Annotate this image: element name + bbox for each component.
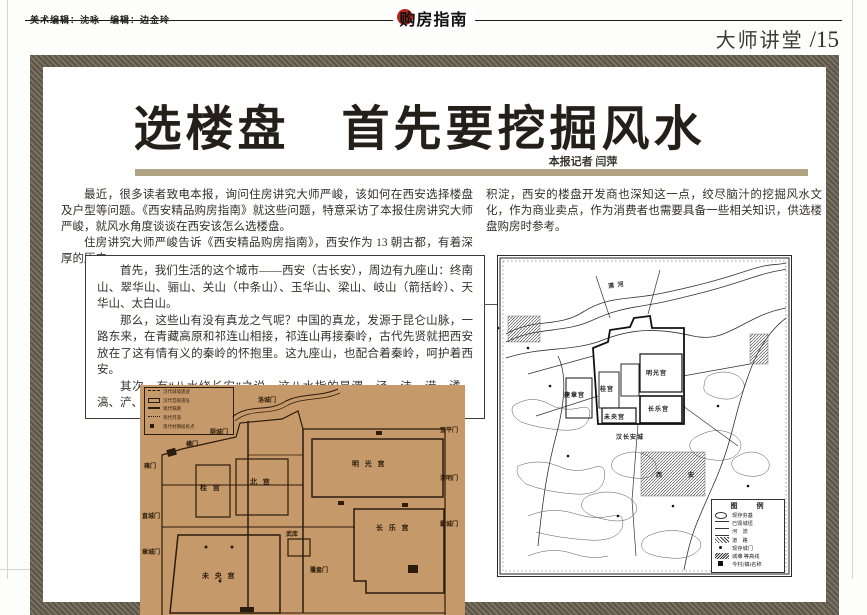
intro-paragraph-3: 积淀，西安的楼盘开发商也深知这一点，绞尽脑汁的挖掘风水文化，作为商业卖点，作为消… [486,187,822,235]
palace-label-gui: 桂 宫 [200,483,222,493]
legend-symbol-road-icon [715,537,729,543]
legend-row: 现代河道 [145,414,233,423]
gate-label-xuanpingmen: 宣平门 [440,425,458,434]
legend-title: 图 例 [716,501,784,511]
legend-symbol-wall-ruin-icon [148,390,160,396]
legend-row: 汉代宫殿遗址 [145,397,233,406]
gate-label-zhangchengmen: 章城门 [142,547,160,556]
gate-label-hengmen: 横门 [186,439,198,448]
masthead: 购房指南 [392,6,474,30]
map-label-gui-palace: 桂宫 [600,384,614,393]
map-label-mingguang-palace: 明光宫 [646,368,667,377]
legend-row: 已毁城垣 [712,519,784,527]
byline: 本报记者 闫萍 [503,153,663,169]
box-paragraph-2: 那么，这些山有没有真龙之气呢？中国的真龙，发源于昆仑山脉，一路东来，在青藏高原和… [97,313,473,379]
intro-column-right: 积淀，西安的楼盘开发商也深知这一点，绞尽脑汁的挖掘风水文化，作为商业卖点，作为消… [486,187,822,235]
legend-row: 汉代城墙遗迹 [145,388,233,397]
palace-label-weiyang: 未 央 宫 [202,571,237,581]
section-heading: 大师讲堂/15 [716,24,839,53]
palace-label-mingguang: 明 光 宫 [352,459,387,469]
map-label-xian: 西 安 [656,470,704,479]
legend-symbol-village-icon [718,561,723,566]
legend-symbol-contour-icon [715,553,729,559]
page-edge-right [852,0,853,579]
masthead-text: 购房指南 [399,12,467,29]
page-number: /15 [810,27,839,52]
legend-symbol-gate-icon [719,546,722,549]
legend-symbol-river-icon [148,416,160,422]
gate-label-chuchengmen: 厨城门 [210,427,228,436]
intro-paragraph-1: 最近，很多读者致电本报，询问住房讲究大师严峻，该如何在西安选择楼盘及户型等问题。… [61,187,473,235]
armory-label-wuku: 武库 [286,529,298,538]
legend-row: 道 路 [712,536,784,544]
page-edge-left [7,0,8,579]
legend-row: 城壕 等高线 [712,552,784,560]
legend-row: 现存城门 [712,544,784,552]
topographic-map: 渭 河 建章宫 桂宫 明光宫 长乐宫 未央宫 汉长安城 西 安 图 例 现存夯基… [497,255,792,577]
title-divider [135,169,808,176]
palace-label-bei: 北 宫 [250,477,272,487]
article-frame: 选楼盘 首先要挖掘风水 本报记者 闫萍 最近，很多读者致电本报，询问住房讲究大师… [30,55,839,615]
article-body: 选楼盘 首先要挖掘风水 本报记者 闫萍 最近，很多读者致电本报，询问住房讲究大师… [43,67,826,602]
legend-row: 今村(镇)名称 [712,560,784,568]
gate-label-luochengmen: 洛城门 [258,395,276,404]
gate-label-qingmingmen: 清明门 [440,473,458,482]
palace-label-changle: 长 乐 宫 [376,523,411,533]
gate-label-fuangmen: 覆盎门 [310,565,328,574]
legend-symbol-river-icon [715,528,729,536]
topographic-map-legend: 图 例 现存夯基 已毁城垣 河 流 道 路 现存城门 城壕 等高线 今村(镇)名… [711,499,785,573]
section-name: 大师讲堂 [716,30,804,52]
legend-row: 现存夯基 [712,511,784,519]
legend-row: 河 流 [712,527,784,535]
map-label-han-city: 汉长安城 [616,432,644,441]
legend-symbol-village-icon [150,424,154,428]
legend-row: 现代铁路 [145,405,233,414]
palace-plan-map: 汉代城墙遗迹 汉代宫殿遗址 现代铁路 现代河道 现代村镇居民点 洛城门 厨城门 … [140,385,465,615]
editors-credit: 美术编辑：沈咏 编辑：边金玲 [30,13,170,26]
gate-label-yongmen: 雍门 [144,461,156,470]
gate-label-bachengmen: 霸城门 [440,519,458,528]
gate-label-zhichengmen: 直城门 [142,511,160,520]
map-label-weiyang-palace: 未央宫 [604,412,625,421]
box-map-leader-line [484,304,498,305]
box-paragraph-1: 首先，我们生活的这个城市——西安（古长安），周边有九座山：终南山、翠华山、骊山、… [97,263,473,313]
map-label-changle-palace: 长乐宫 [648,404,669,413]
map-label-jianzhang-palace: 建章宫 [564,390,585,399]
legend-symbol-palace-icon [148,398,160,403]
legend-symbol-mound-icon [715,512,727,519]
article-title: 选楼盘 首先要挖掘风水 [43,89,796,159]
legend-symbol-railway-icon [148,407,160,414]
